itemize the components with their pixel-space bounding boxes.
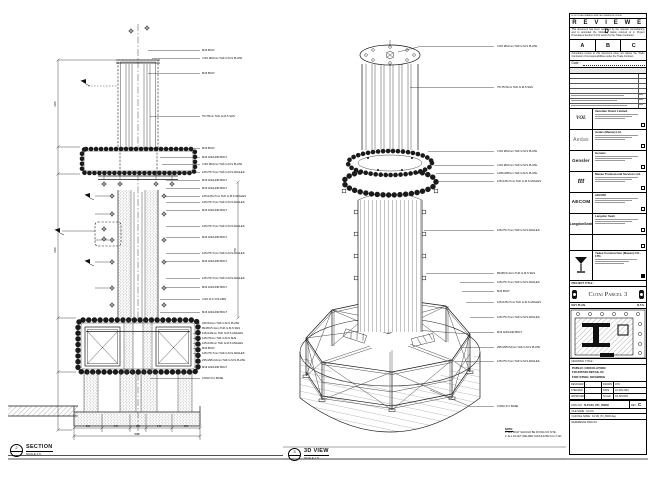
contractor-box: Yadea Construction (Macau) CO., LTD. bbox=[570, 251, 646, 281]
cad-file-label: CAD FILE NAME : bbox=[572, 415, 592, 418]
annotation-label: 75×75mm THK G.M.S SHS bbox=[202, 115, 277, 118]
annotation-label: 125×75×7mm THK G.M.S ANGLES bbox=[202, 225, 277, 228]
date-fill-line bbox=[583, 62, 645, 66]
section-view-title: 2 - SECTION SCALE 1:5 bbox=[10, 444, 53, 457]
annotation-label: M16 ANCHOR BOLT bbox=[497, 331, 569, 334]
consultant-name: Venetian Orient Limited bbox=[595, 110, 644, 113]
annotation-label: M16 BOLT bbox=[202, 72, 277, 75]
rev-value: C bbox=[638, 402, 641, 407]
file-name-value: S-FUN bbox=[586, 410, 593, 413]
annotation-label: 340×10mm THK G.M.S PLATE bbox=[202, 322, 277, 325]
annotation-label: 125×75×7mm THK G.M.S ANGLES bbox=[202, 352, 277, 355]
dim-text: 1450 bbox=[54, 101, 57, 107]
dwg-no-row: DWG NO : S-FUN_PC_B009 REV : C bbox=[570, 401, 646, 409]
annotation-label: 125×75×7mm THK G.M.S ANGLES bbox=[497, 281, 569, 284]
reference-dwg-label: REFERENCE DWG NO : bbox=[572, 421, 599, 424]
consultant-row: tttMacau Professional Services Ltd. bbox=[570, 172, 646, 193]
annotation-label: 4 NO Ø10mm THK G.M.S PLATE bbox=[202, 57, 277, 60]
dwg-no-value: S-FUN_PC_B009 bbox=[584, 403, 609, 407]
dim-text: 600 bbox=[86, 425, 91, 428]
annotation-label: 125×75×7mm THK G.M.S ANGLES bbox=[497, 229, 569, 232]
annotation-label: 89×89×5.4mm THK G.M.S SHS bbox=[202, 327, 277, 330]
annotation-label: M16 ANCHOR BOLT bbox=[202, 179, 277, 182]
scale-value: AS SHOWN bbox=[614, 394, 646, 400]
status-a: A bbox=[570, 40, 596, 51]
consultant-row: AedasAedas (Macau) Ltd. bbox=[570, 130, 646, 151]
note-line: 2. ALL FILLET WELDED SHOULD BE 6mm THK. bbox=[505, 435, 567, 438]
annotation-label: M16 BOLT bbox=[202, 49, 277, 52]
consultant-name: AECOM bbox=[595, 194, 644, 197]
dim-text: 600 bbox=[184, 425, 189, 428]
title-block: DO NOT SCALE DRAWING. VERIFY ALL DIMENSI… bbox=[569, 13, 647, 455]
annotation-label: 295×295×10mm THK G.M.S PLATE bbox=[497, 346, 569, 349]
reviewed-stamp: R E V I E W E D bbox=[570, 19, 646, 28]
annotation-label: M16 ANCHOR BOLT bbox=[202, 236, 277, 239]
status-b: B bbox=[596, 40, 622, 51]
project-title-banner: Cotai Parcel 3 bbox=[570, 287, 646, 303]
consultant-name: Macau Professional Services Ltd. bbox=[595, 173, 644, 176]
iso-view-title: 3 - 3D VIEW SCALE 1:5 bbox=[288, 448, 329, 461]
annotation-label: L295×295mm THK G.M.S PLATE bbox=[497, 172, 569, 175]
key-plan bbox=[570, 309, 646, 359]
annotation-label: 125×75×7mm THK G.M.S ANGLES bbox=[497, 316, 569, 319]
view-sheet-ref: - bbox=[289, 456, 300, 461]
view-sheet-ref: - bbox=[11, 452, 22, 457]
key-plan-label: KEY PLAN bbox=[572, 303, 586, 308]
consultant-checkbox bbox=[641, 228, 645, 232]
banner-ornament-icon bbox=[639, 290, 644, 299]
view-scale: SCALE 1:5 bbox=[304, 456, 329, 460]
key-plan-scale: N.T.S. bbox=[637, 303, 644, 308]
annotation-label: CONC R.C BASE bbox=[497, 405, 569, 408]
annotation-label: 125×75×7mm THK G.M.S ANGLES bbox=[202, 277, 277, 280]
consultant-checkbox bbox=[641, 165, 645, 169]
consultant-checkbox bbox=[641, 244, 645, 248]
annotation-label: M16 ANCHOR BOLT bbox=[202, 187, 277, 190]
consultant-checkbox bbox=[641, 123, 645, 127]
dwg-no-label: DWG NO : bbox=[572, 404, 584, 407]
contractor-name: Yadea Construction (Macau) CO., LTD. bbox=[595, 252, 644, 258]
consultant-logo: AECOM bbox=[570, 193, 593, 213]
annotation-label: 125×125×7mm THK G.M.S ANGLES bbox=[202, 195, 277, 198]
dim-text: 2400 bbox=[54, 247, 57, 253]
annotation-label: M16 ANCHOR BOLT bbox=[202, 209, 277, 212]
consultant-checkbox bbox=[641, 186, 645, 190]
annotation-label: M16 ANCHOR BOLT bbox=[202, 311, 277, 314]
annotation-label: CONC R.C BASE bbox=[202, 377, 277, 380]
view-bubble: 2 - bbox=[10, 444, 23, 457]
consultant-logo: Gensler bbox=[570, 151, 593, 171]
banner-ornament-icon bbox=[572, 290, 577, 299]
annotation-label: M16 ANCHOR BOLT bbox=[202, 260, 277, 263]
dim-text: 3680 bbox=[134, 433, 140, 436]
drawing-lineart: 600 940 600 940 600 3680 1450 2400 750 bbox=[0, 0, 650, 488]
annotation-label: 4 NO Ø10mm THK G.M.S PLATE bbox=[497, 45, 569, 48]
iso-view bbox=[300, 40, 494, 432]
annotation-label: 4 NO Ø10mm THK G.M.S PLATE bbox=[497, 150, 569, 153]
annotation-label: 125×75×7mm THK G.M.S ANGLES bbox=[202, 252, 277, 255]
consultant-row-empty bbox=[570, 235, 646, 251]
drawing-sheet: 600 940 600 940 600 3680 1450 2400 750 bbox=[0, 0, 650, 488]
key-plan-drawing bbox=[570, 309, 646, 359]
approved-value: - bbox=[585, 394, 602, 400]
consultant-row: AECOMAECOM bbox=[570, 193, 646, 214]
consultant-name: Langdon Seah bbox=[595, 215, 644, 218]
consultant-list: VOLVenetian Orient LimitedAedasAedas (Ma… bbox=[570, 109, 646, 251]
glass-logo-icon bbox=[574, 256, 588, 274]
annotation-label: 125×125mm THK G.M.S ANGLES bbox=[202, 342, 277, 345]
view-title-text: 3D VIEW bbox=[304, 448, 329, 456]
date-line: Date : bbox=[570, 61, 646, 68]
annotation-label: 4 NO Ø10mm THK G.M.S PLATE bbox=[497, 164, 569, 167]
review-paragraph: Consultant review of this document does … bbox=[570, 52, 646, 61]
dim-text: 940 bbox=[114, 425, 119, 428]
consultant-logo: VOL bbox=[570, 109, 593, 129]
consultant-row: VOLVenetian Orient Limited bbox=[570, 109, 646, 130]
contractor-logo bbox=[570, 251, 593, 280]
dim-text: 600 bbox=[136, 425, 141, 428]
annotation-label: 125×75×7mm THK G.M.S ANGLES bbox=[202, 171, 277, 174]
annotation-label: M16 BOLT bbox=[202, 347, 277, 350]
view-title-text: SECTION bbox=[26, 444, 53, 452]
general-notes: NOTE: 1. ALL BOLT SHOULD BE FIXING ON SI… bbox=[505, 428, 567, 438]
review-paragraph: This document has been reviewed by the r… bbox=[570, 28, 646, 40]
consultant-name: Gensler bbox=[595, 152, 644, 155]
annotation-label: M16 ANCHOR BOLT bbox=[202, 286, 277, 289]
signoff-grid: DESIGNED - DRAWN LHO CHECKED - DATE 04 J… bbox=[570, 382, 646, 401]
consultant-row: GenslerGensler bbox=[570, 151, 646, 172]
status-c: C bbox=[621, 40, 646, 51]
consultant-row: LangdonSeahLangdon Seah bbox=[570, 214, 646, 235]
cad-file-value: S-FUN_PC_B009.dwg bbox=[592, 415, 616, 418]
annotation-label: 125×75mm THK G.M.S SHS bbox=[202, 337, 277, 340]
annotation-label: 125×75×7mm THK G.M.S ANGLES bbox=[202, 201, 277, 204]
annotation-label: 295×295×10mm THK G.M.S PLATE bbox=[202, 359, 277, 362]
review-status-row: A B C bbox=[570, 40, 646, 52]
annotation-label: M16 ANCHOR BOLT bbox=[202, 156, 277, 159]
view-bubble: 3 - bbox=[288, 448, 301, 461]
annotation-label: M16 BOLT bbox=[497, 290, 569, 293]
file-name-label: FILE NAME : bbox=[572, 410, 586, 413]
reference-dwg-row: REFERENCE DWG NO : bbox=[570, 420, 646, 426]
consultant-logo: ttt bbox=[570, 172, 593, 192]
annotation-label: 4 NO R.C COLUMN bbox=[202, 298, 277, 301]
drawing-title: PUBLIC CIRCULATION FOUNTAIN DETAIL IN FO… bbox=[570, 365, 646, 382]
consultant-checkbox bbox=[641, 144, 645, 148]
annotation-label: M16 ANCHOR BOLT bbox=[202, 366, 277, 369]
annotation-label: 75×75×5mm THK G.M.S SHS bbox=[497, 86, 569, 89]
project-title: Cotai Parcel 3 bbox=[589, 291, 628, 298]
consultant-checkbox bbox=[641, 207, 645, 211]
view-scale: SCALE 1:5 bbox=[26, 452, 53, 456]
annotation-label: 125×125×7mm THK G.M.S ANGLES bbox=[497, 180, 569, 183]
scale-label: SCALE bbox=[602, 394, 614, 400]
annotation-label: 4 NO Ø10mm THK G.M.S PLATE bbox=[202, 163, 277, 166]
dim-text: 940 bbox=[157, 425, 162, 428]
annotation-label: M16 BOLT bbox=[202, 147, 277, 150]
consultant-logo: LangdonSeah bbox=[570, 214, 593, 234]
annotation-label: 125×125mm THK G.M.S ANGLES bbox=[202, 332, 277, 335]
annotation-label: 89×89×5.4mm THK G.M.S SHS bbox=[497, 272, 569, 275]
contractor-seal bbox=[641, 274, 645, 278]
approved-label: APPROVED bbox=[570, 394, 585, 400]
consultant-name: Aedas (Macau) Ltd. bbox=[595, 131, 644, 134]
drawing-title-line: FOR STEEL DRAWING bbox=[572, 375, 644, 380]
consultant-logo: Aedas bbox=[570, 130, 593, 150]
revision-table bbox=[570, 68, 646, 109]
date-label: Date : bbox=[572, 60, 581, 67]
annotation-label: 125×75×7mm THK G.M.S ANGLES bbox=[497, 360, 569, 363]
annotation-label: 125×125×7mm THK G.M.S ANGLES bbox=[497, 301, 569, 304]
rev-label: REV : bbox=[631, 404, 637, 407]
consultant-logo bbox=[570, 235, 593, 250]
